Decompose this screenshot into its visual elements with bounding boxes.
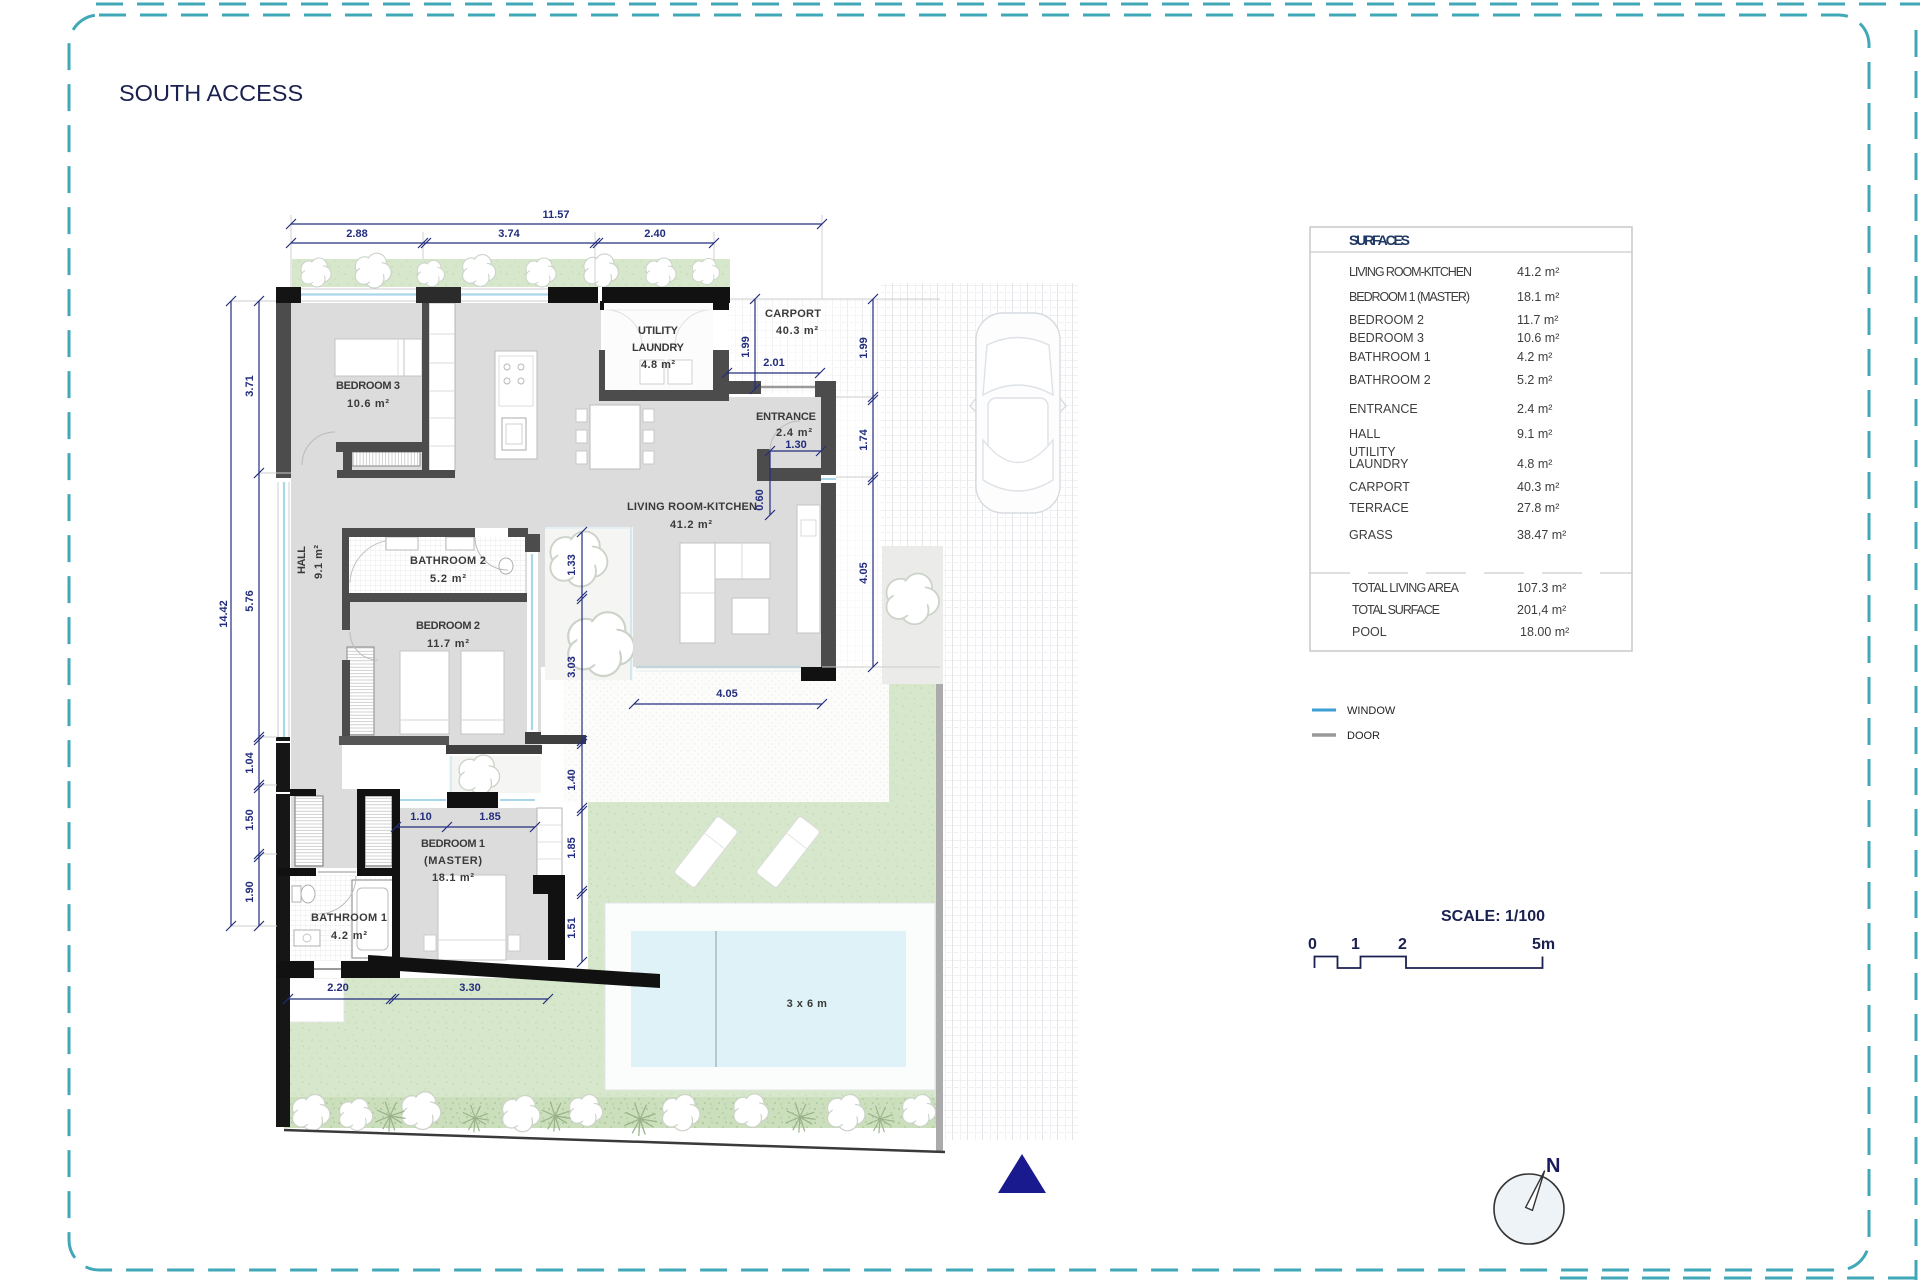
svg-text:1.50: 1.50 (244, 809, 256, 830)
svg-text:1.90: 1.90 (244, 881, 256, 902)
svg-text:1.40: 1.40 (566, 769, 578, 790)
svg-text:WINDOW: WINDOW (1347, 705, 1396, 717)
svg-text:CARPORT: CARPORT (765, 308, 821, 320)
svg-text:2.40: 2.40 (644, 228, 665, 240)
svg-text:BATHROOM 2: BATHROOM 2 (1349, 373, 1431, 387)
svg-text:40.3 m²: 40.3 m² (776, 325, 818, 337)
svg-text:27.8 m²: 27.8 m² (1517, 501, 1559, 515)
svg-text:3.71: 3.71 (244, 375, 256, 396)
svg-text:5.76: 5.76 (244, 590, 256, 611)
svg-text:2: 2 (1398, 936, 1407, 953)
svg-text:2.88: 2.88 (346, 228, 367, 240)
svg-text:BATHROOM 1: BATHROOM 1 (1349, 350, 1431, 364)
svg-text:1.99: 1.99 (858, 337, 870, 358)
svg-text:10.6 m²: 10.6 m² (1517, 331, 1559, 345)
svg-text:38.47 m²: 38.47 m² (1517, 528, 1566, 542)
svg-text:3.30: 3.30 (459, 982, 480, 994)
svg-text:1.10: 1.10 (410, 811, 431, 823)
svg-text:HALL: HALL (296, 546, 308, 574)
svg-text:LIVING ROOM-KITCHEN: LIVING ROOM-KITCHEN (1349, 265, 1472, 279)
svg-text:2.20: 2.20 (327, 982, 348, 994)
svg-text:14.42: 14.42 (218, 600, 230, 628)
svg-text:201,4 m²: 201,4 m² (1517, 603, 1566, 617)
svg-text:40.3 m²: 40.3 m² (1517, 480, 1559, 494)
svg-text:BEDROOM 1: BEDROOM 1 (421, 838, 485, 850)
svg-text:11.7 m²: 11.7 m² (1517, 313, 1558, 327)
svg-text:5.2 m²: 5.2 m² (430, 573, 466, 585)
svg-text:18.00 m²: 18.00 m² (1520, 625, 1569, 639)
svg-text:3.03: 3.03 (566, 656, 578, 677)
svg-text:BEDROOM 3: BEDROOM 3 (336, 380, 400, 392)
svg-text:11.57: 11.57 (543, 209, 570, 221)
svg-text:0: 0 (1308, 936, 1317, 953)
svg-text:TERRACE: TERRACE (1349, 501, 1409, 515)
svg-text:BATHROOM 1: BATHROOM 1 (311, 912, 387, 924)
svg-text:POOL: POOL (1352, 625, 1387, 639)
svg-text:11.7 m²: 11.7 m² (427, 638, 469, 650)
svg-text:3.74: 3.74 (498, 228, 520, 240)
svg-text:1.74: 1.74 (858, 428, 870, 450)
svg-text:N: N (1546, 1155, 1560, 1177)
svg-text:BEDROOM 2: BEDROOM 2 (1349, 313, 1424, 327)
svg-text:9.1 m²: 9.1 m² (1517, 427, 1552, 441)
svg-text:LAUNDRY: LAUNDRY (632, 342, 685, 354)
svg-text:ENTRANCE: ENTRANCE (756, 411, 816, 423)
svg-text:1.04: 1.04 (244, 751, 256, 773)
svg-text:1.33: 1.33 (566, 554, 578, 575)
svg-text:2.4 m²: 2.4 m² (1517, 402, 1552, 416)
svg-text:DOOR: DOOR (1347, 730, 1380, 742)
svg-text:1.85: 1.85 (479, 811, 500, 823)
svg-text:BATHROOM 2: BATHROOM 2 (410, 555, 486, 567)
svg-text:UTILITY: UTILITY (638, 325, 679, 337)
svg-text:107.3 m²: 107.3 m² (1517, 581, 1566, 595)
svg-text:BEDROOM 2: BEDROOM 2 (416, 620, 480, 632)
svg-text:(MASTER): (MASTER) (424, 855, 482, 867)
svg-text:1.30: 1.30 (785, 439, 806, 451)
svg-text:4.8 m²: 4.8 m² (641, 359, 675, 371)
svg-text:2.01: 2.01 (763, 357, 784, 369)
svg-text:GRASS: GRASS (1349, 528, 1393, 542)
svg-text:TOTAL LIVING AREA: TOTAL LIVING AREA (1352, 581, 1460, 595)
svg-text:ENTRANCE: ENTRANCE (1349, 402, 1418, 416)
svg-text:4.05: 4.05 (858, 562, 870, 583)
svg-text:9.1 m²: 9.1 m² (313, 545, 325, 579)
svg-text:5.2 m²: 5.2 m² (1517, 373, 1552, 387)
svg-text:4.8 m²: 4.8 m² (1517, 457, 1552, 471)
svg-text:LAUNDRY: LAUNDRY (1349, 457, 1409, 471)
svg-text:5m: 5m (1532, 936, 1555, 953)
svg-text:BEDROOM 1 (MASTER): BEDROOM 1 (MASTER) (1349, 290, 1470, 304)
svg-text:CARPORT: CARPORT (1349, 480, 1410, 494)
svg-text:LIVING ROOM-KITCHEN: LIVING ROOM-KITCHEN (627, 501, 757, 513)
svg-text:BEDROOM 3: BEDROOM 3 (1349, 331, 1424, 345)
svg-text:41.2 m²: 41.2 m² (1517, 265, 1559, 279)
svg-text:1.51: 1.51 (566, 917, 578, 938)
svg-text:18.1 m²: 18.1 m² (432, 872, 474, 884)
svg-text:1: 1 (1351, 936, 1360, 953)
svg-text:4.2 m²: 4.2 m² (331, 930, 367, 942)
svg-text:SURFACES: SURFACES (1349, 232, 1410, 248)
svg-text:18.1 m²: 18.1 m² (1517, 290, 1559, 304)
svg-text:4.2 m²: 4.2 m² (1517, 350, 1552, 364)
svg-text:HALL: HALL (1349, 427, 1380, 441)
svg-text:TOTAL SURFACE: TOTAL SURFACE (1352, 603, 1440, 617)
svg-text:10.6 m²: 10.6 m² (347, 398, 389, 410)
svg-text:4.05: 4.05 (716, 688, 737, 700)
svg-text:41.2 m²: 41.2 m² (670, 519, 712, 531)
svg-text:1.85: 1.85 (566, 837, 578, 858)
svg-text:3 x 6 m: 3 x 6 m (787, 998, 828, 1010)
svg-text:2.4 m²: 2.4 m² (776, 427, 812, 439)
svg-text:SCALE: 1/100: SCALE: 1/100 (1441, 908, 1545, 925)
svg-text:1.99: 1.99 (740, 336, 752, 357)
svg-text:SOUTH ACCESS: SOUTH ACCESS (119, 80, 303, 106)
